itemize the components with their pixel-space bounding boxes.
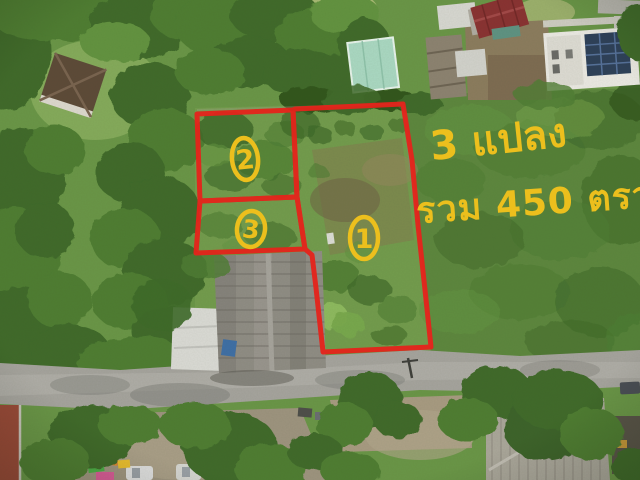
plot-1-label: 1 [355, 224, 374, 255]
aerial-photo: 2 3 1 3 แปลง รวม 450 ตรว. [0, 0, 640, 480]
plot-3-label: 3 [241, 214, 261, 245]
vignette [0, 0, 640, 480]
plot-2-label: 2 [234, 144, 256, 177]
